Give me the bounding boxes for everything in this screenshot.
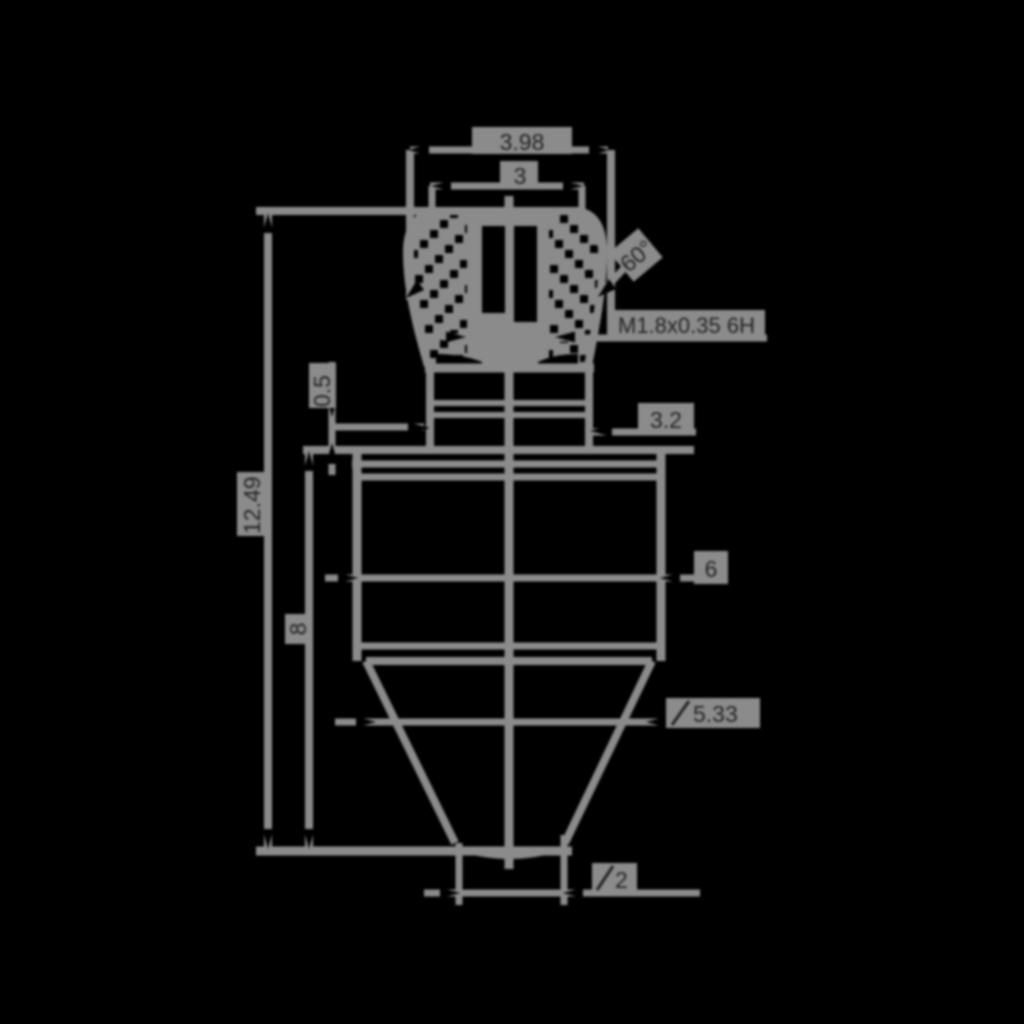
svg-text:3.98: 3.98	[500, 129, 545, 155]
svg-text:2: 2	[615, 867, 628, 893]
svg-text:6: 6	[705, 556, 718, 582]
svg-text:12.49: 12.49	[239, 476, 265, 534]
svg-text:0.5: 0.5	[309, 375, 335, 407]
svg-text:M1.8x0.35 6H: M1.8x0.35 6H	[618, 313, 755, 338]
svg-text:5.33: 5.33	[693, 701, 738, 727]
svg-text:8: 8	[285, 623, 311, 636]
svg-text:3.2: 3.2	[650, 407, 682, 433]
svg-text:3: 3	[514, 163, 527, 189]
